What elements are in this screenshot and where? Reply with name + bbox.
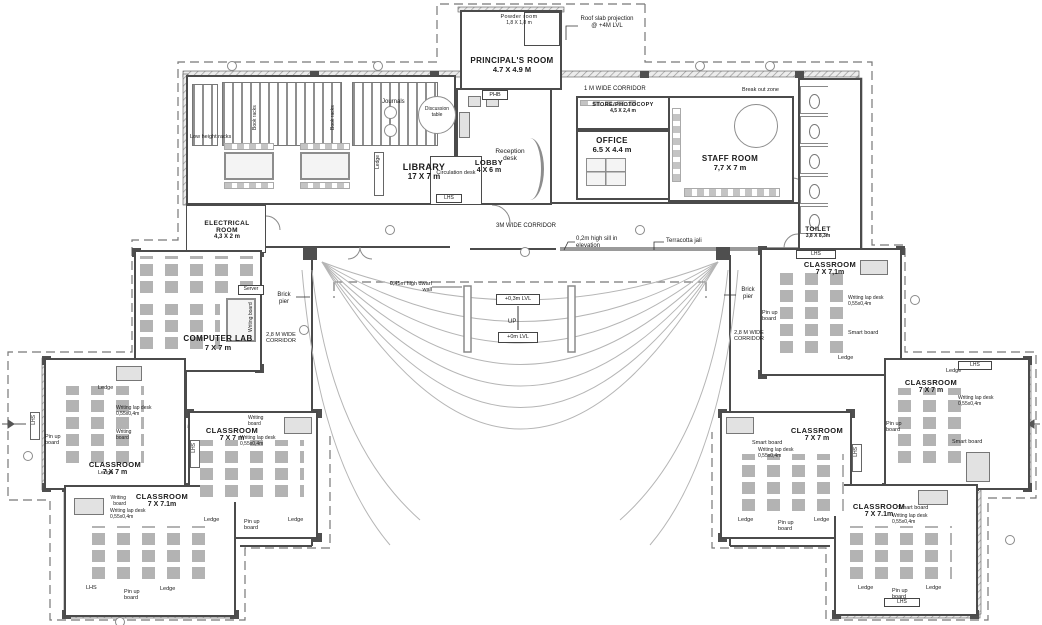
room-staff	[668, 96, 794, 202]
circulation-desk-label: Circulation desk	[433, 170, 479, 176]
library-table-1	[224, 152, 274, 180]
ledge-strip: Ledge	[374, 152, 384, 196]
lap-desk-label: Writing lap desk 0,55x0,4m	[892, 514, 936, 526]
smart-board-label: Smart board	[848, 330, 878, 336]
library-chairs	[224, 143, 274, 150]
lhs-strip: LHS	[958, 361, 992, 370]
journal-rack	[384, 124, 397, 137]
computer-lab-label: COMPUTER LAB 7 X 7 m	[176, 334, 260, 352]
reception-desk-label: Reception desk	[490, 148, 530, 163]
corridor-28m-label: 2,8 M WIDE CORRIDOR	[260, 332, 302, 345]
lap-desk-label: Writing lap desk 0,55x0,4m	[848, 296, 886, 308]
lhs-strip: LHS	[190, 440, 200, 468]
ledge-label: Ledge	[738, 517, 753, 523]
journal-rack	[384, 106, 397, 119]
phb-box: PHB	[482, 90, 508, 100]
classroom-desks	[66, 386, 144, 468]
server-box: Server	[238, 285, 264, 295]
classroom-desks	[742, 454, 844, 516]
powder-room-label: Powder room 1,8 X 1,8 m	[486, 14, 552, 26]
teacher-desk	[966, 452, 990, 482]
pin-up-board-label: Pin up board	[244, 519, 270, 532]
lap-desk-label: Writing lap desk 0,55x0,4m	[758, 448, 802, 460]
pin-up-board-label: Pin up board	[45, 434, 71, 447]
pin-up-board-label: Pin up board	[762, 310, 788, 323]
corridor-3m-label: 3M WIDE CORRIDOR	[496, 223, 556, 230]
staff-room-label: STAFF ROOM 7,7 X 7 m	[688, 154, 772, 172]
book-racks-label: Book racks	[252, 90, 258, 146]
teacher-desk	[726, 417, 754, 434]
breakout-round-table	[734, 104, 778, 148]
ledge-label: Ledge	[858, 585, 873, 591]
smart-board-label: Smart board	[752, 440, 782, 446]
toilet-label: TOILET 3,8 X 8,3m	[798, 226, 838, 239]
dwarf-wall-note: 0,45m high dwarf wall	[386, 281, 432, 294]
lap-desk-label: Writing lap desk 0,55x0,4m	[240, 436, 282, 448]
corridor-28m-label: 2,8 M WIDE CORRIDOR	[728, 330, 770, 343]
toilet-stall	[800, 116, 828, 144]
ledge-label: Ledge	[926, 585, 941, 591]
ledge-label: Ledge	[838, 355, 853, 361]
level-plus03-box: +0,3m LVL	[496, 294, 540, 305]
terracotta-jali-label: Terracotta jali	[666, 238, 702, 245]
ledge-label: Ledge	[814, 517, 829, 523]
low-height-racks-label: Low height racks	[190, 134, 231, 140]
staff-wall-seats	[672, 108, 681, 182]
pin-up-board-label: Pin up board	[124, 589, 150, 602]
lap-desk-label: Writing lap desk 0,55x0,4m	[110, 509, 152, 521]
teacher-desk	[918, 490, 948, 505]
smart-board-label: Smart board	[898, 505, 928, 511]
classroom-desks	[850, 526, 952, 584]
principal-room-label: PRINCIPAL'S ROOM 4.7 X 4.9 M	[466, 56, 558, 74]
ledge-label: Ledge	[160, 586, 175, 592]
break-out-zone-label: Break out zone	[742, 87, 779, 93]
electrical-room-label: ELECTRICAL ROOM 4,3 X 2 m	[194, 220, 260, 240]
lap-desk-label: Writing lap desk 0,55x0,4m	[116, 406, 152, 418]
teacher-desk	[284, 417, 312, 434]
book-racks-label: Book racks	[330, 90, 336, 146]
lhs-strip: LHS	[30, 412, 40, 440]
pin-up-board-label: Pin up board	[886, 421, 912, 434]
book-racks-left	[222, 82, 342, 146]
journals-label: Journals	[382, 99, 405, 106]
roof-slab-note: Roof slab projection @ +4M LVL	[580, 16, 634, 30]
classroom-r3-label: CLASSROOM 7 X 7 m	[892, 378, 970, 394]
lobby-chair	[468, 96, 481, 107]
discussion-table-label: Discussion table	[423, 107, 451, 119]
toilet-stall	[800, 86, 828, 114]
sill-note: 0,2m high sill in elevation	[576, 236, 624, 250]
library-chairs	[300, 143, 350, 150]
classroom-desks	[200, 440, 304, 502]
classroom-r1-label: CLASSROOM 7 X 7,1m	[790, 260, 870, 276]
ledge-label: Ledge	[98, 385, 113, 391]
writing-board-label: Writing board	[248, 416, 274, 428]
brick-pier-label: Brick pier	[736, 287, 760, 301]
toilet-stall	[800, 176, 828, 204]
teacher-desk	[116, 366, 142, 381]
classroom-l3-label: CLASSROOM 7 X 7.1m	[126, 492, 198, 508]
ledge-label: Ledge	[98, 470, 113, 476]
smart-board-label: Smart board	[952, 439, 982, 445]
office-table	[586, 158, 626, 186]
classroom-desks	[780, 270, 846, 358]
corridor-1m-label: 1 M WIDE CORRIDOR	[584, 86, 646, 93]
classroom-desks	[92, 526, 212, 584]
staff-wall-seats	[684, 188, 780, 197]
toilet-stall	[800, 146, 828, 174]
writing-board-label: Writing board	[248, 300, 254, 334]
lhs-label: LHS	[86, 585, 97, 591]
lhs-strip: LHS	[796, 250, 836, 259]
library-table-2	[300, 152, 350, 180]
pin-up-board-label: Pin up board	[778, 520, 804, 533]
lhs-strip: LHS	[436, 194, 462, 203]
ledge-label: Ledge	[288, 517, 303, 523]
lhs-strip: LHS	[884, 598, 920, 607]
level-0-box: +0m LVL	[498, 332, 538, 343]
store-label: STORE/PHOTOCOPY 4,5 X 2,4 m	[588, 102, 658, 114]
up-label: UP	[508, 319, 516, 326]
ledge-label: Ledge	[204, 517, 219, 523]
classroom-l1-label: CLASSROOM 7 X 7 m	[76, 460, 154, 476]
writing-board-label: Writing board	[100, 496, 126, 508]
writing-board-label: Writing board	[116, 430, 142, 442]
library-chairs	[224, 182, 274, 189]
brick-pier-label: Brick pier	[272, 292, 296, 306]
floor-plan: PRINCIPAL'S ROOM 4.7 X 4.9 M Powder room…	[0, 0, 1042, 625]
lap-desk-label: Writing lap desk 0,55x0,4m	[958, 396, 996, 408]
library-chairs	[300, 182, 350, 189]
lobby-couch	[459, 112, 470, 138]
lhs-strip: LHS	[852, 444, 862, 472]
classroom-r2-label: CLASSROOM 7 X 7 m	[784, 426, 850, 442]
office-label: OFFICE 6.5 X 4.4 m	[582, 136, 642, 154]
